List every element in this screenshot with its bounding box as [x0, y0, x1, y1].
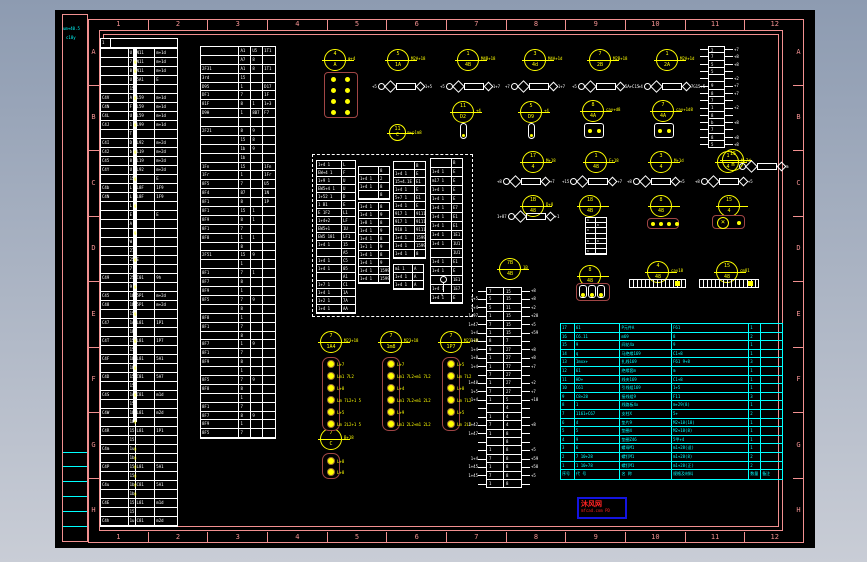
cable-symbol: +4 7G15+5	[638, 82, 705, 91]
cable-diamond-icon	[608, 177, 618, 187]
wire-stub	[478, 467, 486, 468]
bom-row: 5 5 垫圈4 M2+18(8) 1	[561, 427, 782, 436]
table-row: 1+4 1 15	[317, 241, 355, 249]
table-row: D95 1 D17	[201, 83, 275, 92]
table-row: EW5+4 1 U	[317, 185, 355, 193]
component-circle-symbol: 7 1A4 M23+18	[320, 331, 342, 353]
bom-row: 12 61 绝缘套m m 1	[561, 367, 782, 376]
terminal-row: 1+4 1 5 +18	[456, 396, 553, 404]
table-row: 7	[101, 265, 177, 274]
table-row: 15	[101, 310, 177, 319]
bom-table: 17 61 P元件A F61 1 16 C6.11 m69 8 2 15 9 间…	[560, 323, 783, 480]
terminal-row: 1+45 1 8 +58	[456, 463, 553, 471]
table-row: C4m 1u	[101, 445, 177, 454]
table-row: 1+4 1 9	[359, 259, 389, 267]
terminal-row: 1+42 7 4 +8	[456, 421, 553, 429]
pin-dot-icon	[588, 129, 592, 133]
table-row: 8F8 1	[201, 314, 275, 323]
terminal-row: 1+4 9 27 +8	[456, 346, 553, 354]
table-row: m1 1 A	[394, 265, 423, 273]
terminal-row: 1 8 +5	[456, 446, 553, 454]
table-row: C45 1b 5P1 m+2d	[101, 292, 177, 301]
table-row: 1+4 1 8	[359, 235, 389, 243]
striped-connector-bar	[699, 279, 759, 288]
wire-stub	[725, 93, 733, 94]
wire-stub	[478, 349, 486, 350]
wire-stub	[700, 115, 708, 116]
terminal-row: b +8	[700, 119, 756, 126]
wire-stub	[725, 129, 733, 130]
yellow-mark: 9	[134, 394, 136, 398]
terminal-row: 1+8 1 27 +8	[456, 354, 553, 362]
wire-stub	[478, 400, 486, 401]
square-connector-symbol	[584, 123, 604, 138]
ruler-row-label: H	[793, 478, 804, 544]
bom-row: 17 61 P元件A F61 1	[561, 324, 782, 333]
ground-symbol-stem	[443, 283, 444, 292]
table-row: 15	[101, 400, 177, 409]
component-circle-symbol: 1 48 F+18	[585, 151, 607, 173]
terminal-row: 1+48 1 27 +2	[456, 379, 553, 387]
yellow-mark: 9	[134, 457, 136, 461]
bom-row: 15 9 间花4a 9 1	[561, 341, 782, 350]
revision-divider	[63, 526, 87, 527]
pin-dot-icon	[345, 99, 350, 104]
ruler-row-label: E	[793, 281, 804, 347]
terminal-row: 5 +8	[700, 61, 756, 68]
terminal-row: 1+45 7 8 +5	[456, 472, 553, 480]
table-row: 8F1 7	[201, 349, 275, 358]
component-circle-symbol: 7 1m8 M23+18	[380, 331, 402, 353]
wire-stub	[522, 475, 530, 476]
table-row: 8F5 7 9	[201, 296, 275, 305]
table-row: 1	[201, 394, 275, 403]
ruler-col-label: 2	[148, 19, 208, 30]
yellow-mark: 9	[134, 421, 136, 425]
table-row: 1+4 1 E	[431, 267, 462, 276]
wire-stub	[478, 391, 486, 392]
cable-symbol: +7 1+7	[505, 82, 565, 91]
cable-diamond-icon	[483, 82, 493, 92]
cable-diamond-icon	[639, 175, 652, 188]
pin-dot-icon	[581, 293, 585, 297]
table-row: 15+4.1E E1	[394, 178, 425, 186]
cable-diamond-icon	[452, 80, 465, 93]
table-row: 8F7 8 9	[201, 412, 275, 421]
table-row: 1b	[201, 154, 275, 163]
wire-stub	[700, 78, 708, 79]
wire-stub	[522, 375, 530, 376]
table-row: 8F1 15 1	[201, 207, 275, 216]
table-row: 8F1 7	[201, 225, 275, 234]
table-row: 1+4 1 1599	[394, 242, 425, 250]
wire-stub	[522, 467, 530, 468]
crossed-circle-icon: ×	[717, 217, 729, 229]
ruler-col-label: 8	[506, 532, 566, 543]
wire-table-1-header: 1	[100, 38, 178, 48]
table-row: 1+4 1 A	[394, 273, 423, 281]
bom-row: 13 1mxx+ 扎线169 F61 9+8 3	[561, 358, 782, 367]
wire-stub	[522, 349, 530, 350]
table-row: 15 8	[201, 136, 275, 145]
pin-dot-icon	[387, 408, 395, 416]
pin-dot-icon	[387, 396, 395, 404]
center-terminal-strip: 7 15 +8 1+5 5 15 +8 1+4 5 11 +2 1+97 1 1…	[456, 287, 553, 488]
wire-stub	[478, 484, 486, 485]
margin-note-2: c18y	[66, 35, 76, 40]
terminal-row: 1 +2	[700, 104, 756, 111]
table-row: 1+4 1 E	[394, 186, 425, 194]
wire-stub	[700, 144, 708, 145]
pin-dot-icon	[447, 372, 455, 380]
ruler-col-label: 5	[327, 19, 387, 30]
cable-diamond-icon	[650, 80, 663, 93]
wire-stub	[478, 442, 486, 443]
yellow-mark: 9	[134, 151, 136, 155]
table-row: E E	[101, 211, 177, 220]
margin-note-1: um+40.5	[63, 26, 80, 31]
terminal-row: 9 +7	[700, 82, 756, 89]
wire-stub	[522, 307, 530, 308]
connector-pin: Lm1 2L2+m1 2L2	[387, 420, 431, 428]
table-row: 15	[101, 346, 177, 355]
table-row: 1+4 1 05	[317, 265, 355, 273]
wire-stub	[478, 433, 486, 434]
component-circle-symbol: 7 4A cav+1d8	[652, 100, 674, 122]
table-row: 1+4 1 E7	[431, 204, 462, 213]
wire-stub	[725, 122, 733, 123]
cable-symbol: +8 +5	[695, 177, 753, 186]
ruler-col-label: 3	[207, 19, 267, 30]
sub-table-2a: 8 1+4 1 2 1+4 1 8 8	[358, 166, 390, 200]
bom-row: 2 7 10+28 螺钉M1 m1+28(8) 2	[561, 453, 782, 462]
cable-diamond-icon	[415, 82, 425, 92]
table-row: m17 1 E	[431, 177, 462, 186]
table-row: 1+4 1 E	[394, 202, 425, 210]
yellow-key-icon	[675, 281, 680, 286]
table-row: 2F21 8 9	[201, 127, 275, 136]
ruler-row-label: B	[88, 85, 99, 151]
striped-connector-bar	[629, 279, 686, 288]
ruler-row-label: G	[793, 412, 804, 478]
table-row: C4I D L92 m+2d	[101, 139, 177, 148]
table-row: C4N L L8F 1F9	[101, 193, 177, 202]
bom-row: 14 q 马绝缘169 C1+8 1	[561, 350, 782, 359]
table-row: 1b	[101, 418, 177, 427]
wire-stub	[522, 433, 530, 434]
fuse-symbol	[460, 123, 467, 139]
pin-dot-icon	[447, 420, 455, 428]
cable-shield-bar-icon	[588, 178, 608, 185]
component-circle-symbol: 8 4A cav+d8	[582, 100, 604, 122]
ruler-row-label: A	[793, 19, 804, 85]
yellow-mark: 9	[134, 259, 136, 263]
table-row: 1 B1 E	[317, 201, 355, 209]
table-row: 1+4 1 1A	[317, 289, 355, 297]
table-row: 15	[101, 472, 177, 481]
pin-dot-icon	[447, 384, 455, 392]
ruler-col-label: 10	[625, 532, 685, 543]
ruler-col-label: 6	[386, 532, 446, 543]
table-row: EW5+1 1U	[317, 225, 355, 233]
wire-stub	[700, 129, 708, 130]
yellow-mark: 9	[134, 97, 136, 101]
sub-table-3: B 1+4 1 E 15+4.1E E1 1+4 1 E 5+7 1 E1 1+…	[393, 161, 426, 259]
bom-row: 1 1 10+78 螺钉M1 m1+28(正) 2	[561, 462, 782, 471]
wire-stub	[522, 484, 530, 485]
component-circle-symbol: 11 D2 +4	[452, 101, 474, 123]
table-row: 8F1 8 1P	[201, 198, 275, 207]
terminal-row: 7	[700, 126, 756, 133]
terminal-row: 1+47 1 8	[456, 430, 553, 438]
table-row: 1+4 1 8	[359, 183, 389, 191]
connector-pin: Lm 7L2+1 5	[327, 396, 361, 404]
table-row: D9H 1 8B7 F7	[201, 109, 275, 118]
table-row: 8 N11 m+1d	[101, 67, 177, 76]
ruler-row-label: H	[88, 478, 99, 544]
table-row: C4h 1u C81 m2d	[101, 517, 177, 526]
cable-shield-bar-icon	[396, 83, 416, 90]
cable-shield-bar-icon	[464, 83, 484, 90]
component-circle-symbol: 5 D9 +4	[520, 101, 542, 123]
pin-dot-icon	[345, 77, 350, 82]
table-row: C4N F L59 m+1d	[101, 103, 177, 112]
pin-dot-icon	[327, 372, 335, 380]
ruler-col-label: 7	[446, 19, 506, 30]
cable-symbol: +15 +7	[562, 177, 622, 186]
connector-pin: L+7	[387, 360, 404, 368]
wire-stub	[478, 425, 486, 426]
terminal-row: 1+4 1 15 +59	[456, 329, 553, 337]
table-row: 9	[101, 283, 177, 292]
table-row: DF1 7 1F	[201, 91, 275, 100]
yellow-mark: 9	[134, 178, 136, 182]
table-row: C4b L L8F 1F9	[101, 184, 177, 193]
fuse-dot-icon	[530, 134, 533, 137]
cable-diamond-icon	[738, 177, 748, 187]
revision-divider	[63, 511, 87, 512]
table-row: U N11 m+1d	[101, 49, 177, 58]
wire-table-1: U N11 m+1d 7 N11 m+1d 8 N11 m+1d U 5A1 E…	[100, 48, 178, 527]
ruler-row-label: G	[88, 412, 99, 478]
wire-stub	[725, 56, 733, 57]
bom-rows: 17 61 P元件A F61 1 16 C6.11 m69 8 2 15 9 间…	[561, 324, 782, 470]
table-row: 1+2 1 7A	[317, 297, 355, 305]
terminal-row: 7 15 +8	[456, 287, 553, 295]
terminal-row: 7 27	[456, 371, 553, 379]
ruler-left: ABCDEFGH	[88, 19, 99, 543]
component-circle-symbol: 3 4d M4A+1d	[524, 49, 546, 71]
table-row: 81F 8 1 1+3	[201, 100, 275, 109]
cable-shield-bar-icon	[651, 178, 671, 185]
table-row: C4P 15 L81 5A1	[101, 463, 177, 472]
cable-diamond-icon	[707, 175, 720, 188]
circle-crossline	[648, 206, 680, 207]
wire-stub	[522, 366, 530, 367]
table-row: 1+4 1 8	[359, 203, 389, 211]
table-row: C4E 15 L81 m1d	[101, 499, 177, 508]
cable-symbol: m	[738, 162, 788, 171]
pin-dot-icon	[327, 457, 335, 465]
circle-crossline	[577, 276, 609, 277]
table-row: 8	[201, 243, 275, 252]
table-row: 1U1	[431, 249, 462, 258]
pin-dot-icon	[651, 222, 655, 226]
yellow-mark: 9	[134, 475, 136, 479]
ruler-row-label: E	[88, 281, 99, 347]
cable-symbol: 1+87 +1	[497, 212, 559, 221]
bom-row: 4 9 垫圈Z46 5甲+4 1	[561, 436, 782, 445]
wire-stub	[522, 333, 530, 334]
wire-stub	[522, 324, 530, 325]
table-row: 8F1 7 1	[201, 269, 275, 278]
cable-shield-bar-icon	[719, 178, 739, 185]
pin-dot-icon	[327, 396, 335, 404]
connector-pin: L+7	[327, 360, 344, 368]
cable-symbol: +5 1+7	[440, 82, 500, 91]
cable-diamond-icon	[584, 80, 597, 93]
terminal-row: 1+4 1 77 +7	[456, 363, 553, 371]
table-row: 1+9 1 U	[317, 177, 355, 185]
table-row: 8F7 1 9	[201, 340, 275, 349]
table-row: W	[101, 238, 177, 247]
table-row: C4R 15 L81 1P1	[101, 427, 177, 436]
yellow-mark: 9	[134, 493, 136, 497]
component-circle-symbol: 4 A φ+4	[324, 49, 346, 71]
pin-dot-icon	[659, 222, 663, 226]
cable-shield-bar-icon	[757, 163, 777, 170]
fuse-dot-icon	[462, 134, 465, 137]
table-row: 1	[201, 260, 275, 269]
ruler-col-label: 3	[207, 532, 267, 543]
table-row: 1b	[101, 490, 177, 499]
wire-stub	[478, 383, 486, 384]
wire-stub	[700, 64, 708, 65]
table-row: C47 1u L81 1P1	[101, 319, 177, 328]
terminal-row: 1+97 1 15 +28	[456, 312, 553, 320]
terminal-row: 8	[456, 438, 553, 446]
revision-divider	[63, 496, 87, 497]
table-row: 25 E	[101, 256, 177, 265]
table-row: A5	[317, 249, 355, 257]
wire-stub	[522, 417, 530, 418]
terminal-row: 8 +8	[700, 134, 756, 141]
table-row: 1+4 1 L	[317, 161, 355, 169]
wire-stub	[478, 341, 486, 342]
wire-table-1-index: 1	[101, 39, 111, 47]
wire-table-2: A1 U5 1T1 A7 8 2F31 A1 8 1T1 3rd 15 D95 …	[200, 46, 276, 439]
pin-dot-icon	[327, 360, 335, 368]
table-row: 1+4 1 2	[359, 175, 389, 183]
wire-stub	[478, 408, 486, 409]
table-row: 1Fr 1 1Fr	[201, 171, 275, 180]
terminal-row: 1+5 7 27 +7	[456, 388, 553, 396]
wire-stub	[700, 108, 708, 109]
table-row: 8F8 1 1	[201, 234, 275, 243]
component-circle-symbol: 1 2A M2A+1d	[656, 49, 678, 71]
wire-stub	[522, 408, 530, 409]
bom-row: 3 6 螺母M1 m1+28(适) 1	[561, 444, 782, 453]
connector-pin: Lm1 7L2	[327, 372, 354, 380]
table-row: 1+4 1 1599	[359, 267, 389, 275]
wire-stub	[522, 442, 530, 443]
wire-stub	[478, 333, 486, 334]
sub-table-4: B 1+4 1 E m17 1 E 1+4 1 E 1+4 1 E 1+4 1 …	[430, 158, 463, 304]
wire-table-1-header-blank	[111, 39, 177, 47]
wire-stub	[700, 122, 708, 123]
terminal-row: 4	[456, 404, 553, 412]
terminal-row: +2	[700, 75, 756, 82]
cable-diamond-icon	[545, 212, 555, 222]
pin-dot-icon	[447, 360, 455, 368]
ground-symbol-arrow: v	[441, 292, 443, 297]
ruler-col-label: 4	[267, 19, 327, 30]
cable-diamond-icon	[777, 162, 787, 172]
table-row: 8F9 8	[201, 358, 275, 367]
table-row: 8F9 8 1	[201, 216, 275, 225]
ruler-row-label: F	[793, 347, 804, 413]
wire-stub	[478, 459, 486, 460]
wire-stub	[478, 358, 486, 359]
stamp-brand: 沐风网	[581, 500, 623, 508]
wire-stub	[522, 459, 530, 460]
yellow-mark: 9	[134, 61, 136, 65]
bom-row: 8 1 线路板4x m+29(8) 1	[561, 401, 782, 410]
wire-stub	[725, 64, 733, 65]
table-row: 15 E	[101, 175, 177, 184]
cable-diamond-icon	[670, 177, 680, 187]
table-row: 918 1 9111	[394, 226, 425, 234]
connector-pin: L+5	[327, 408, 344, 416]
yellow-mark: 9	[134, 466, 136, 470]
wire-stub	[725, 71, 733, 72]
bom-header-row: 序号 代 号 名 称 规格及材料 数量 备注	[561, 470, 782, 479]
cable-diamond-icon	[509, 175, 522, 188]
table-row: T	[101, 130, 177, 139]
connector-pin: Lm1 7L2+m1 2L2	[387, 396, 431, 404]
cable-diamond-icon	[514, 210, 527, 223]
yellow-mark: 9	[134, 205, 136, 209]
table-row: 9	[586, 249, 606, 254]
wire-stub	[700, 56, 708, 57]
stamp-line-2: mfcad.com PD	[581, 508, 623, 513]
table-row: 1+4 1 9	[359, 211, 389, 219]
square-connector-symbol	[654, 123, 674, 138]
table-row: 8	[201, 332, 275, 341]
revision-divider	[63, 466, 87, 467]
cable-diamond-icon	[681, 82, 691, 92]
table-row: A1	[317, 273, 355, 281]
ground-symbol-circle	[440, 276, 447, 283]
table-row: C4S 1u C81 m1d	[101, 391, 177, 400]
circle-crossline	[577, 206, 609, 207]
table-row: 1+4 1 8	[394, 250, 425, 258]
wire-stub	[522, 341, 530, 342]
circle-crossline	[716, 206, 748, 207]
pin-dot-icon	[447, 408, 455, 416]
component-circle-symbol: 7B 4B 1B	[499, 258, 521, 280]
table-row: 1b	[101, 364, 177, 373]
ruler-row-label: F	[88, 347, 99, 413]
table-row: 3rd 15	[201, 74, 275, 83]
pin-dot-icon	[387, 420, 395, 428]
binding-strip	[62, 14, 88, 542]
table-row: EW5 181 LF1	[317, 233, 355, 241]
cable-shield-bar-icon	[662, 83, 682, 90]
cable-diamond-icon	[615, 82, 625, 92]
table-row: 8F9 1	[201, 420, 275, 429]
wire-stub	[478, 366, 486, 367]
